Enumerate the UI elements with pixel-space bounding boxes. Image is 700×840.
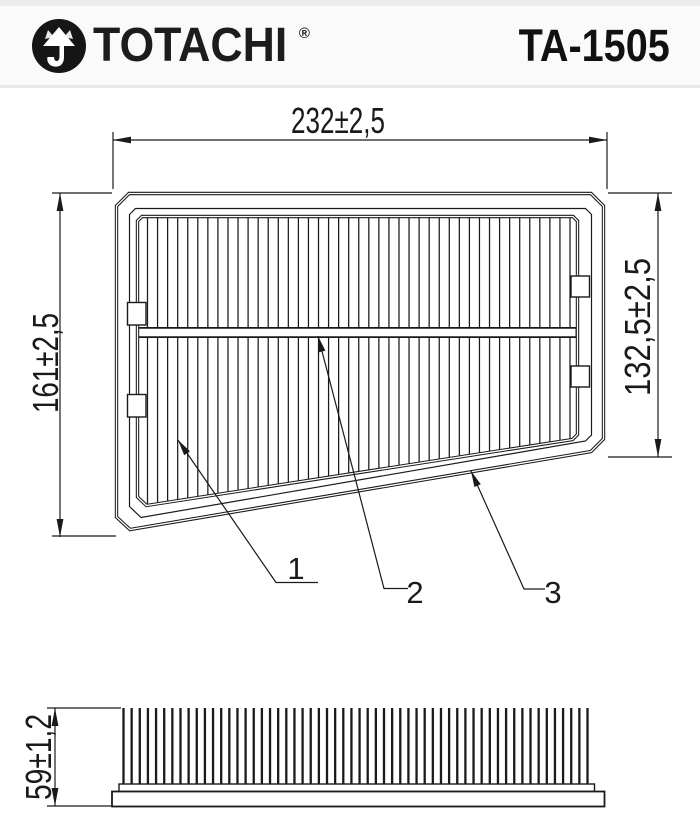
dim-width-value: 232±2,5 [291, 100, 385, 141]
callout-1-label: 1 [287, 551, 304, 586]
callout-2: 2 [318, 336, 424, 610]
dim-left-value: 161±2,5 [25, 313, 66, 413]
callout-3: 3 [471, 471, 562, 610]
filter-pleat-teeth-side-view [124, 708, 588, 784]
dimension-height-right: 132,5±2,5 [608, 193, 672, 457]
filter-side-trays [112, 784, 605, 807]
filter-pleat-border [138, 217, 578, 506]
brand-logo: TOTACHI ® [30, 17, 310, 75]
callout-2-label: 2 [406, 575, 423, 610]
header: TOTACHI ® TA-1505 [0, 0, 700, 88]
brand-name: TOTACHI [93, 18, 287, 73]
part-number: TA-1505 [519, 20, 670, 72]
filter-center-crossbar [138, 328, 576, 338]
dimension-width: 232±2,5 [113, 100, 607, 189]
callout-3-label: 3 [544, 575, 561, 610]
dim-right-value: 132,5±2,5 [617, 258, 658, 396]
dim-side-value: 59±1,2 [18, 714, 59, 800]
technical-drawing: 232±2,5 161±2,5 132,5±2,5 1 2 3 [0, 0, 700, 840]
totachi-emblem-icon [30, 17, 88, 75]
registered-trademark-icon: ® [299, 25, 310, 42]
dimension-side-height: 59±1,2 [18, 708, 121, 806]
dimension-height-left: 161±2,5 [25, 193, 116, 537]
filter-outer-frame [117, 194, 604, 530]
filter-pleats-top-view [148, 218, 571, 504]
